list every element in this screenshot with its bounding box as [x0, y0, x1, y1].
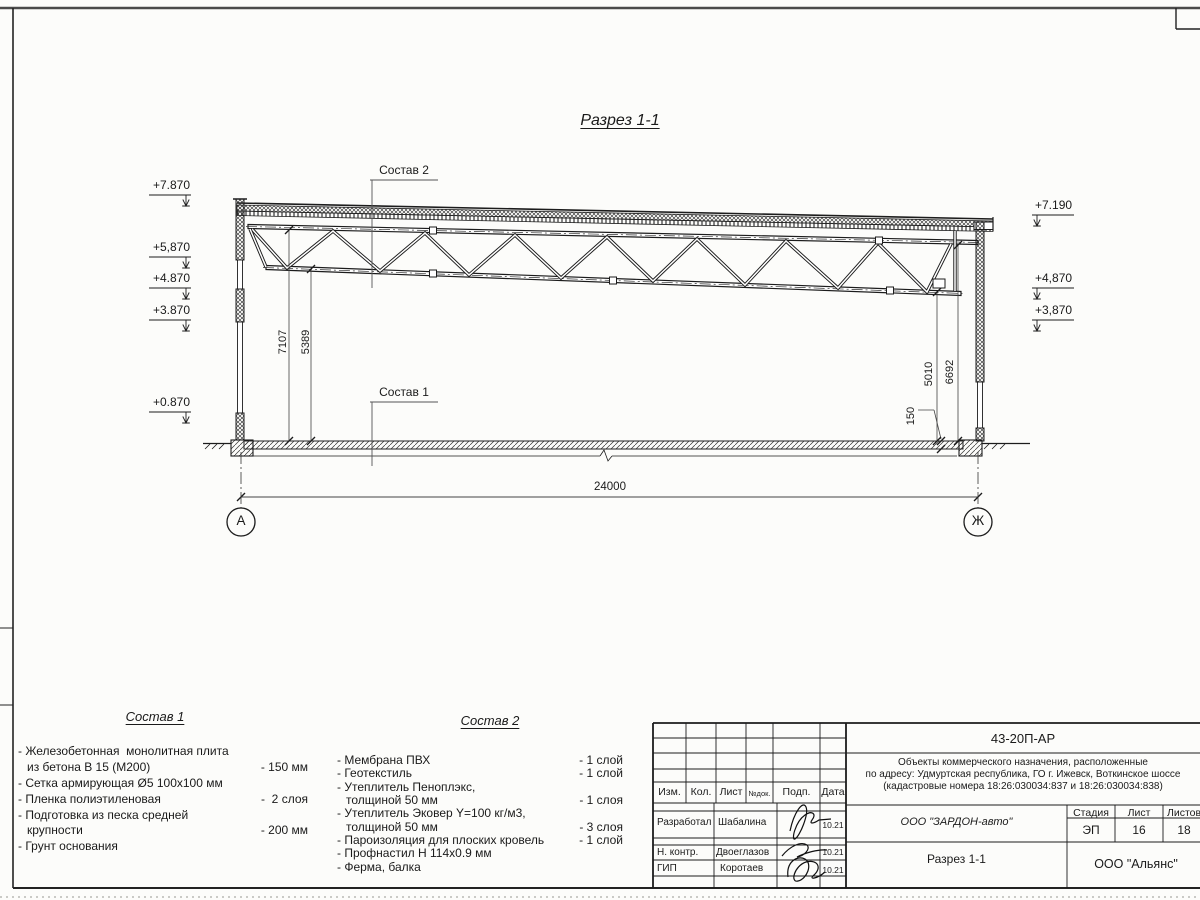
floor-slab — [244, 441, 963, 461]
layer-row: - Утеплитель Эковер Y=100 кг/м3, — [337, 806, 623, 819]
elevation-right-3870: +3,870 — [1035, 304, 1072, 317]
layer-row: из бетона В 15 (М200)- 150 мм — [18, 760, 308, 776]
col-header-izm: Изм. — [653, 786, 686, 798]
sostav1-title: Состав 1 — [118, 710, 192, 724]
project-line-1: Объекты коммерческого назначения, распол… — [846, 757, 1200, 768]
axis-bubble-zh: Ж — [966, 514, 990, 529]
name-shabalina: Шабалина — [718, 817, 766, 828]
dim-7107: 7107 — [277, 320, 289, 364]
elevation-right-4870: +4,870 — [1035, 272, 1072, 285]
left-wall — [233, 199, 247, 440]
role-gip: ГИП — [657, 863, 677, 874]
dim-6692: 6692 — [944, 350, 956, 394]
dim-24000: 24000 — [580, 481, 640, 494]
org-name: ООО "Альянс" — [1067, 857, 1200, 871]
layer-row: толщиной 50 мм- 3 слоя — [337, 820, 623, 833]
col-header-podp: Подп. — [773, 786, 820, 798]
col-header-ndok: №док. — [746, 789, 773, 798]
elevation-left-7870: +7.870 — [120, 179, 190, 192]
sostav2-title: Состав 2 — [453, 714, 527, 728]
elevation-left-5870: +5,870 — [120, 241, 190, 254]
project-line-3: (кадастровые номера 18:26:030034:837 и 1… — [846, 781, 1200, 792]
layer-row: - Ферма, балка — [337, 860, 623, 873]
col-header-kol: Кол. — [686, 786, 716, 798]
roof-truss — [246, 225, 980, 296]
dim-5010: 5010 — [923, 352, 935, 396]
axis-bubble-a: А — [229, 514, 253, 529]
layer-row: - Железобетонная монолитная плита — [18, 744, 308, 760]
company-name: ООО "ЗАРДОН-авто" — [846, 816, 1067, 828]
col-header-list: Лист — [716, 786, 746, 798]
layer-row: - Геотекстиль- 1 слой — [337, 766, 623, 779]
role-nkontr: Н. контр. — [657, 847, 698, 858]
sheets-label: Листов — [1163, 807, 1200, 819]
date-nkontr: 10.21 — [820, 847, 846, 857]
stage-label: Стадия — [1067, 807, 1115, 819]
elevation-left-0870: +0.870 — [120, 396, 190, 409]
sostav1-list: - Железобетонная монолитная плита из бет… — [18, 744, 308, 855]
date-gip: 10.21 — [820, 865, 846, 875]
layer-row: - Подготовка из песка средней — [18, 808, 308, 824]
stage-value: ЭП — [1067, 823, 1115, 837]
layer-row: - Профнастил Н 114х0.9 мм — [337, 846, 623, 859]
elevation-right-7190: +7.190 — [1035, 199, 1072, 212]
date-razrabotal: 10.21 — [820, 820, 846, 830]
layer-row: - Грунт основания — [18, 839, 308, 855]
elevation-left-3870: +3.870 — [120, 304, 190, 317]
layer-row: - Утеплитель Пеноплэкс, — [337, 780, 623, 793]
break-mark — [600, 450, 612, 461]
sheet-label: Лист — [1115, 807, 1163, 819]
drawing-sheet: Разрез 1-1 Состав 2 Состав 1 +7.870 +5,8… — [0, 0, 1200, 900]
doc-number: 43-20П-АР — [846, 731, 1200, 746]
sheet-number: 16 — [1115, 823, 1163, 837]
callout-leaders — [370, 180, 438, 466]
layer-row: - Сетка армирующая Ø5 100х100 мм — [18, 776, 308, 792]
col-header-data: Дата — [820, 786, 846, 798]
layer-row: толщиной 50 мм- 1 слоя — [337, 793, 623, 806]
truss-bearing — [933, 279, 945, 288]
project-line-2: по адресу: Удмуртская республика, ГО г. … — [846, 769, 1200, 780]
callout-sostav2-label: Состав 2 — [368, 164, 440, 177]
sheets-total: 18 — [1163, 823, 1200, 837]
layer-row: - Пароизоляция для плоских кровель- 1 сл… — [337, 833, 623, 846]
elevation-left-4870: +4.870 — [120, 272, 190, 285]
callout-sostav1-label: Состав 1 — [368, 386, 440, 399]
role-razrabotal: Разработал — [657, 817, 711, 828]
axis-bubbles — [227, 508, 992, 536]
layer-row: - Пленка полиэтиленовая- 2 слоя — [18, 792, 308, 808]
layer-row: крупности- 200 мм — [18, 823, 308, 839]
axis-lines — [241, 452, 978, 508]
section-title: Разрез 1-1 — [555, 112, 685, 130]
dim-150: 150 — [905, 394, 917, 438]
name-dvoeglazov: Двоеглазов — [716, 847, 769, 858]
drawing-name: Разрез 1-1 — [846, 852, 1067, 866]
layer-row: - Мембрана ПВХ- 1 слой — [337, 753, 623, 766]
name-korotaev: Коротаев — [720, 863, 763, 874]
right-wall — [976, 222, 984, 441]
dim-5389: 5389 — [300, 320, 312, 364]
sostav2-list: - Мембрана ПВХ- 1 слой - Геотекстиль- 1 … — [337, 753, 623, 873]
